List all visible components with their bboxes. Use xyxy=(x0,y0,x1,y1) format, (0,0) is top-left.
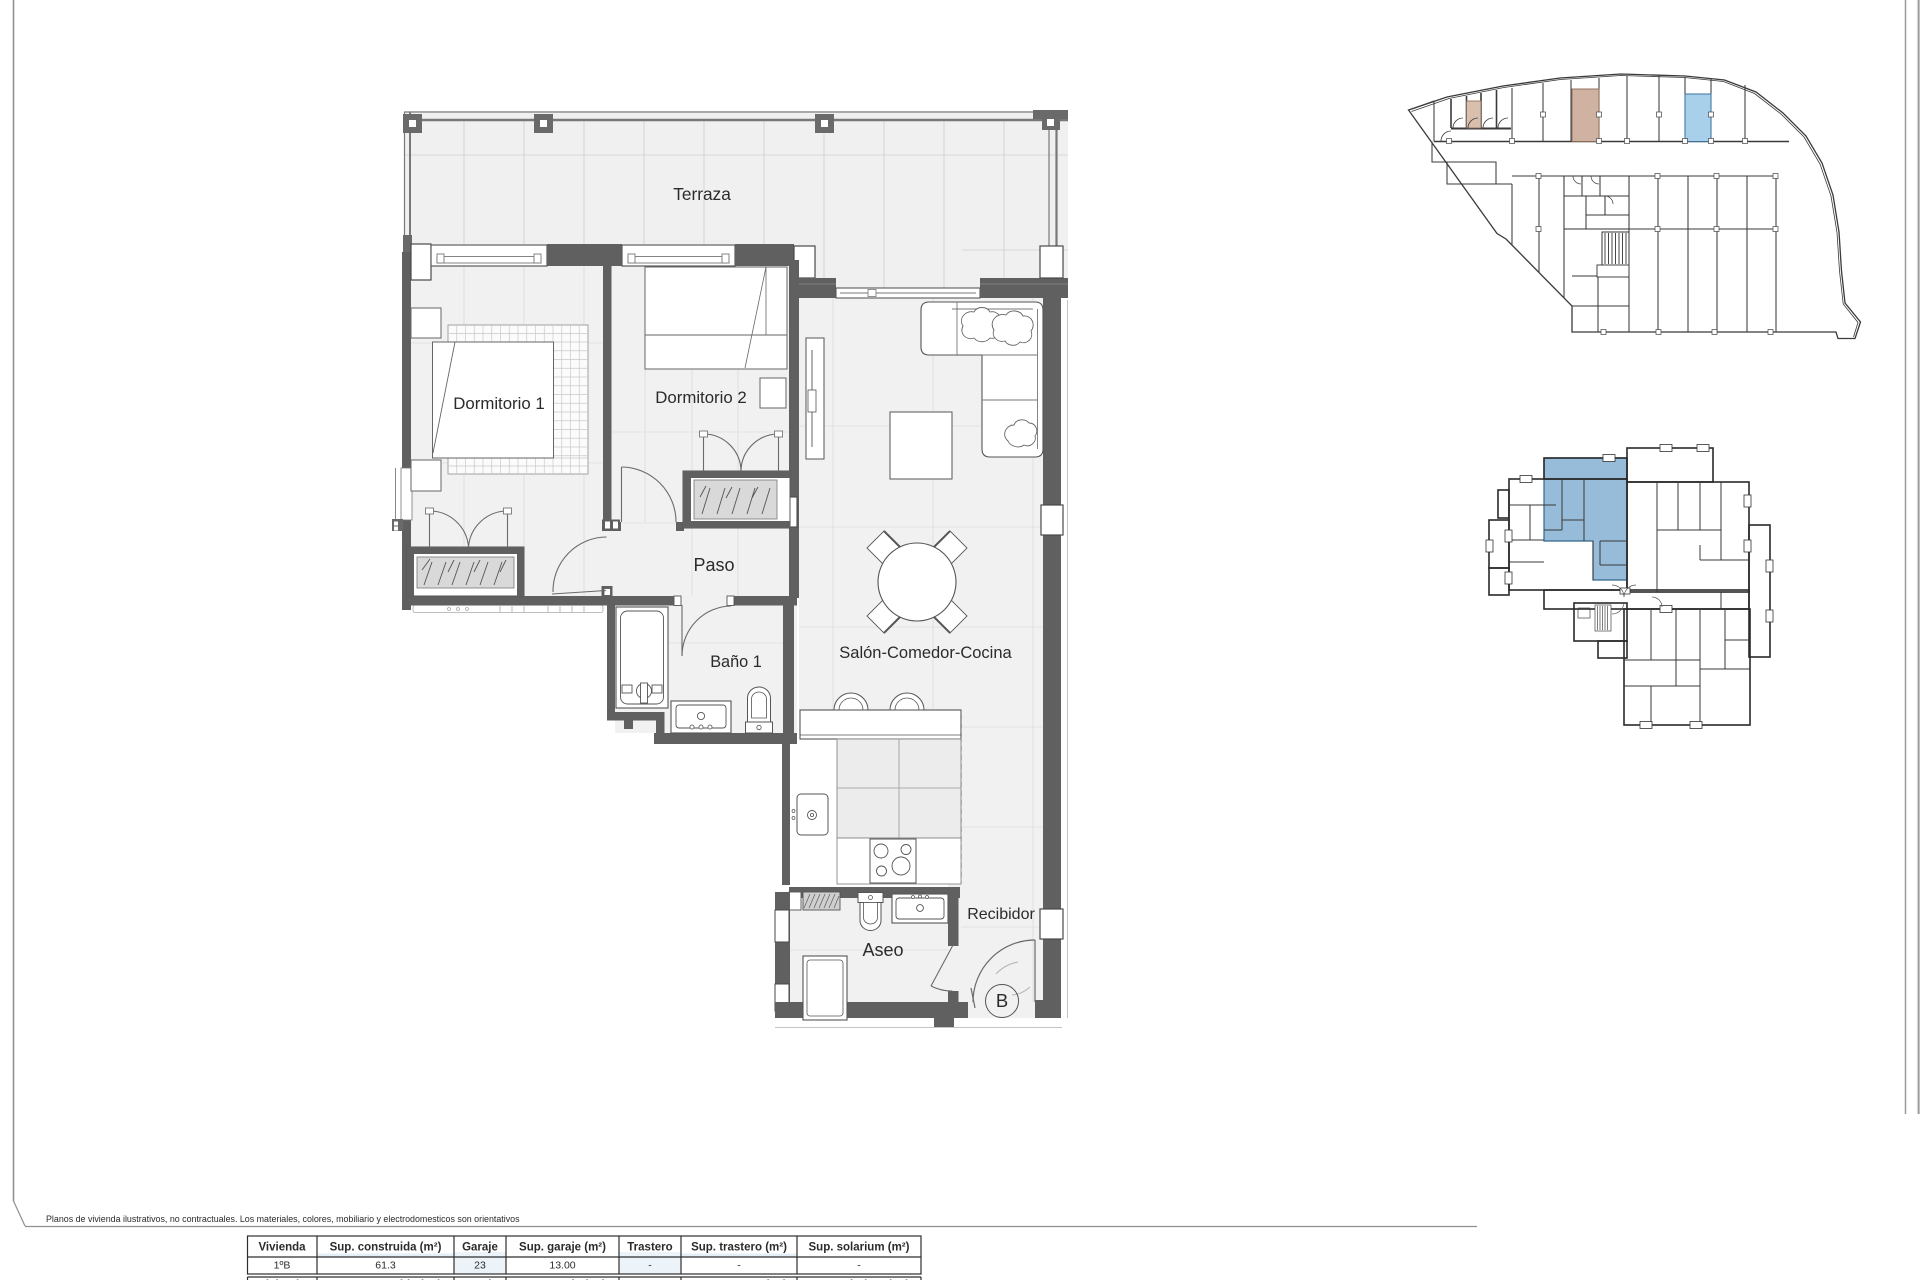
svg-text:Aseo: Aseo xyxy=(862,940,903,960)
svg-text:Garaje: Garaje xyxy=(462,1242,498,1254)
svg-text:Terraza: Terraza xyxy=(673,184,731,204)
svg-text:-: - xyxy=(648,1260,652,1272)
svg-text:Baño 1: Baño 1 xyxy=(710,653,762,671)
svg-text:1ºB: 1ºB xyxy=(274,1260,291,1272)
svg-text:61.3: 61.3 xyxy=(375,1260,396,1272)
svg-text:Recibidor: Recibidor xyxy=(967,906,1035,923)
svg-text:Sup. construida (m²): Sup. construida (m²) xyxy=(330,1242,442,1254)
svg-text:13.00: 13.00 xyxy=(549,1260,575,1272)
svg-text:-: - xyxy=(857,1260,861,1272)
svg-text:Trastero: Trastero xyxy=(627,1242,672,1254)
svg-text:Salón-Comedor-Cocina: Salón-Comedor-Cocina xyxy=(839,644,1012,662)
svg-text:Sup. garaje (m²): Sup. garaje (m²) xyxy=(519,1242,606,1254)
svg-text:Sup. trastero (m²): Sup. trastero (m²) xyxy=(691,1242,787,1254)
svg-text:Vivienda: Vivienda xyxy=(258,1242,306,1254)
svg-text:Paso: Paso xyxy=(693,555,734,575)
svg-text:23: 23 xyxy=(474,1260,486,1272)
svg-text:Dormitorio 1: Dormitorio 1 xyxy=(453,394,544,413)
svg-text:Planos de vivienda ilustrativo: Planos de vivienda ilustrativos, no cont… xyxy=(46,1214,520,1224)
svg-text:Dormitorio 2: Dormitorio 2 xyxy=(655,388,746,407)
svg-text:Sup. solarium (m²): Sup. solarium (m²) xyxy=(809,1242,910,1254)
svg-text:B: B xyxy=(996,990,1008,1011)
svg-text:-: - xyxy=(737,1260,741,1272)
